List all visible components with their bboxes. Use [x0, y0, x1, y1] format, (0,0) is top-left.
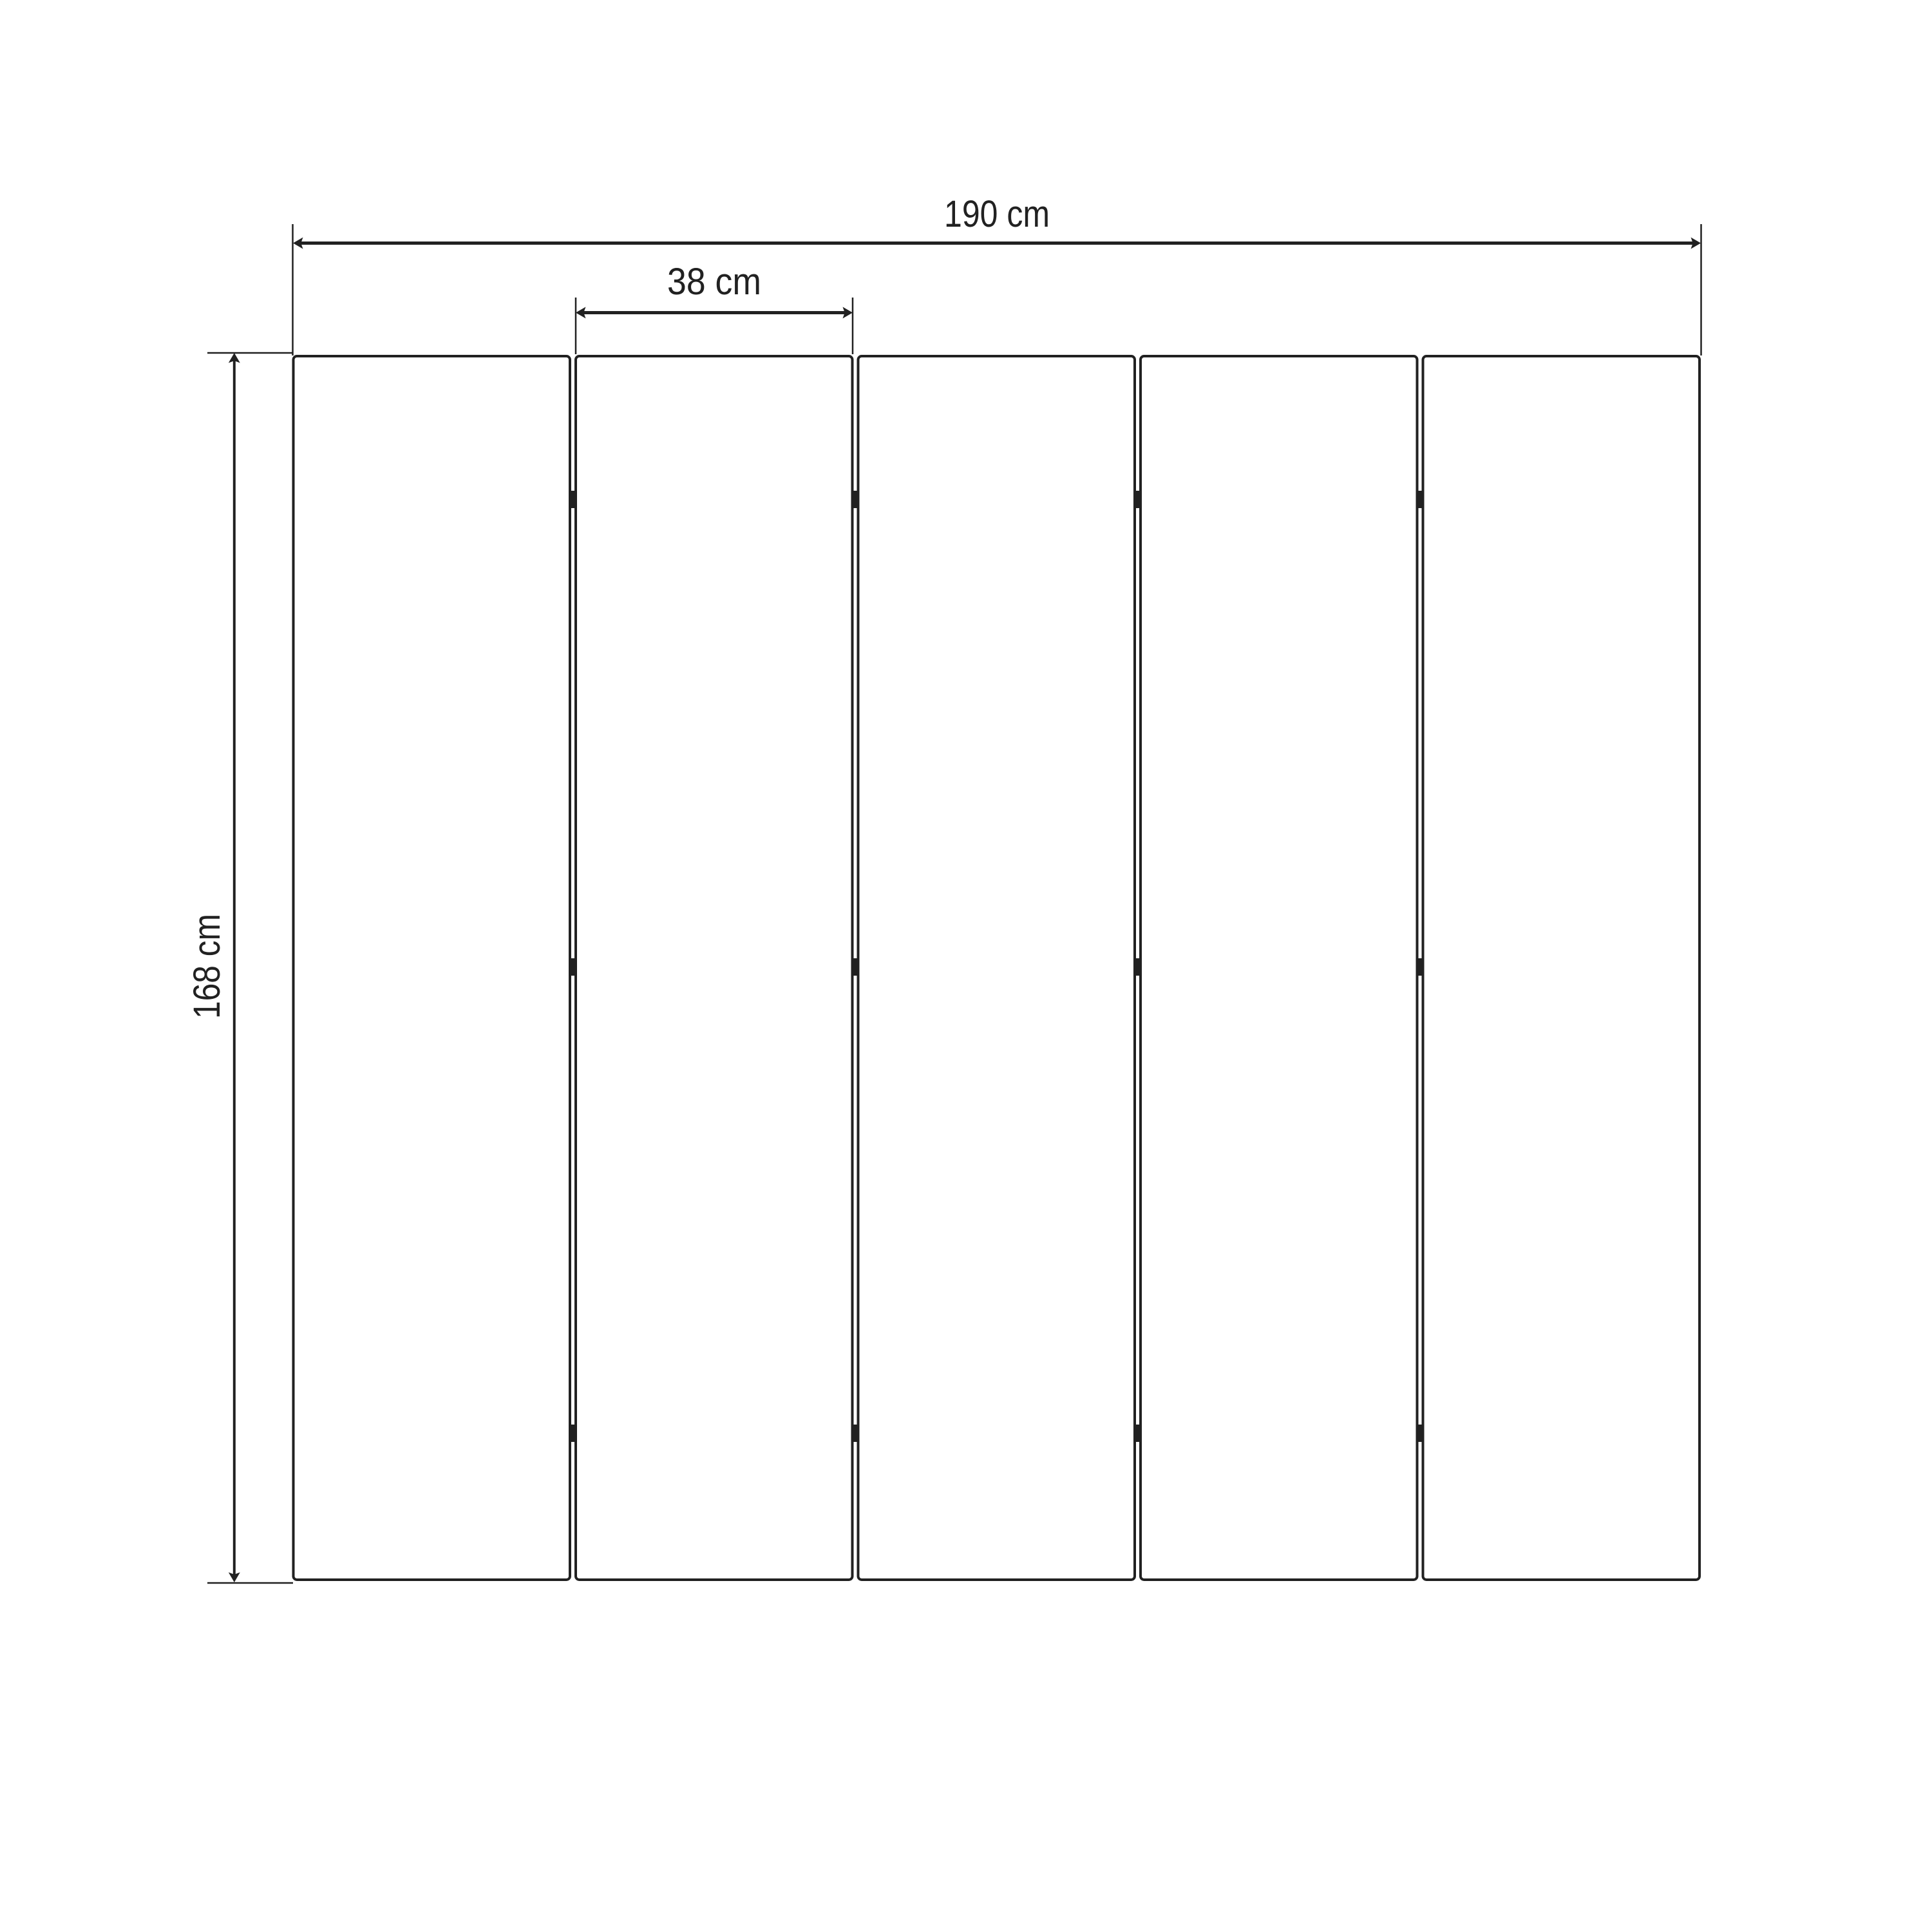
svg-text:190 cm: 190 cm [944, 193, 1050, 235]
svg-text:38 cm: 38 cm [667, 261, 761, 303]
svg-text:168 cm: 168 cm [186, 914, 228, 1019]
